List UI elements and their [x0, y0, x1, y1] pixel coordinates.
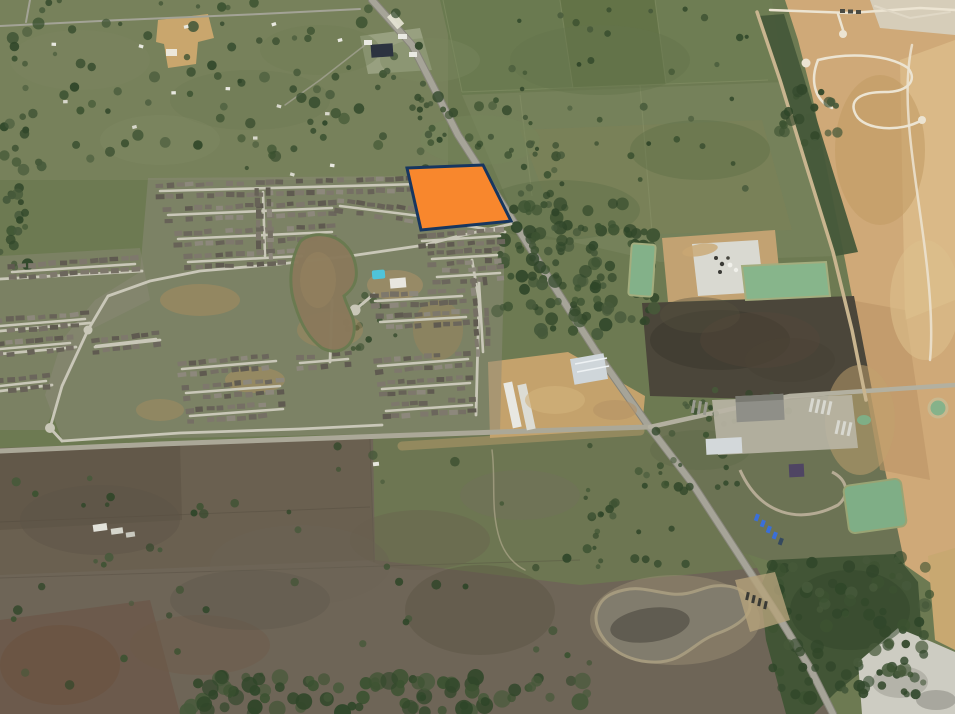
- amenity-center: [390, 277, 407, 288]
- community-pool: [372, 269, 386, 279]
- satellite-image: [0, 0, 955, 714]
- small-pond: [857, 415, 871, 425]
- round-pond: [929, 399, 947, 417]
- aerial-map: [0, 0, 955, 714]
- yard-pond: [843, 478, 907, 534]
